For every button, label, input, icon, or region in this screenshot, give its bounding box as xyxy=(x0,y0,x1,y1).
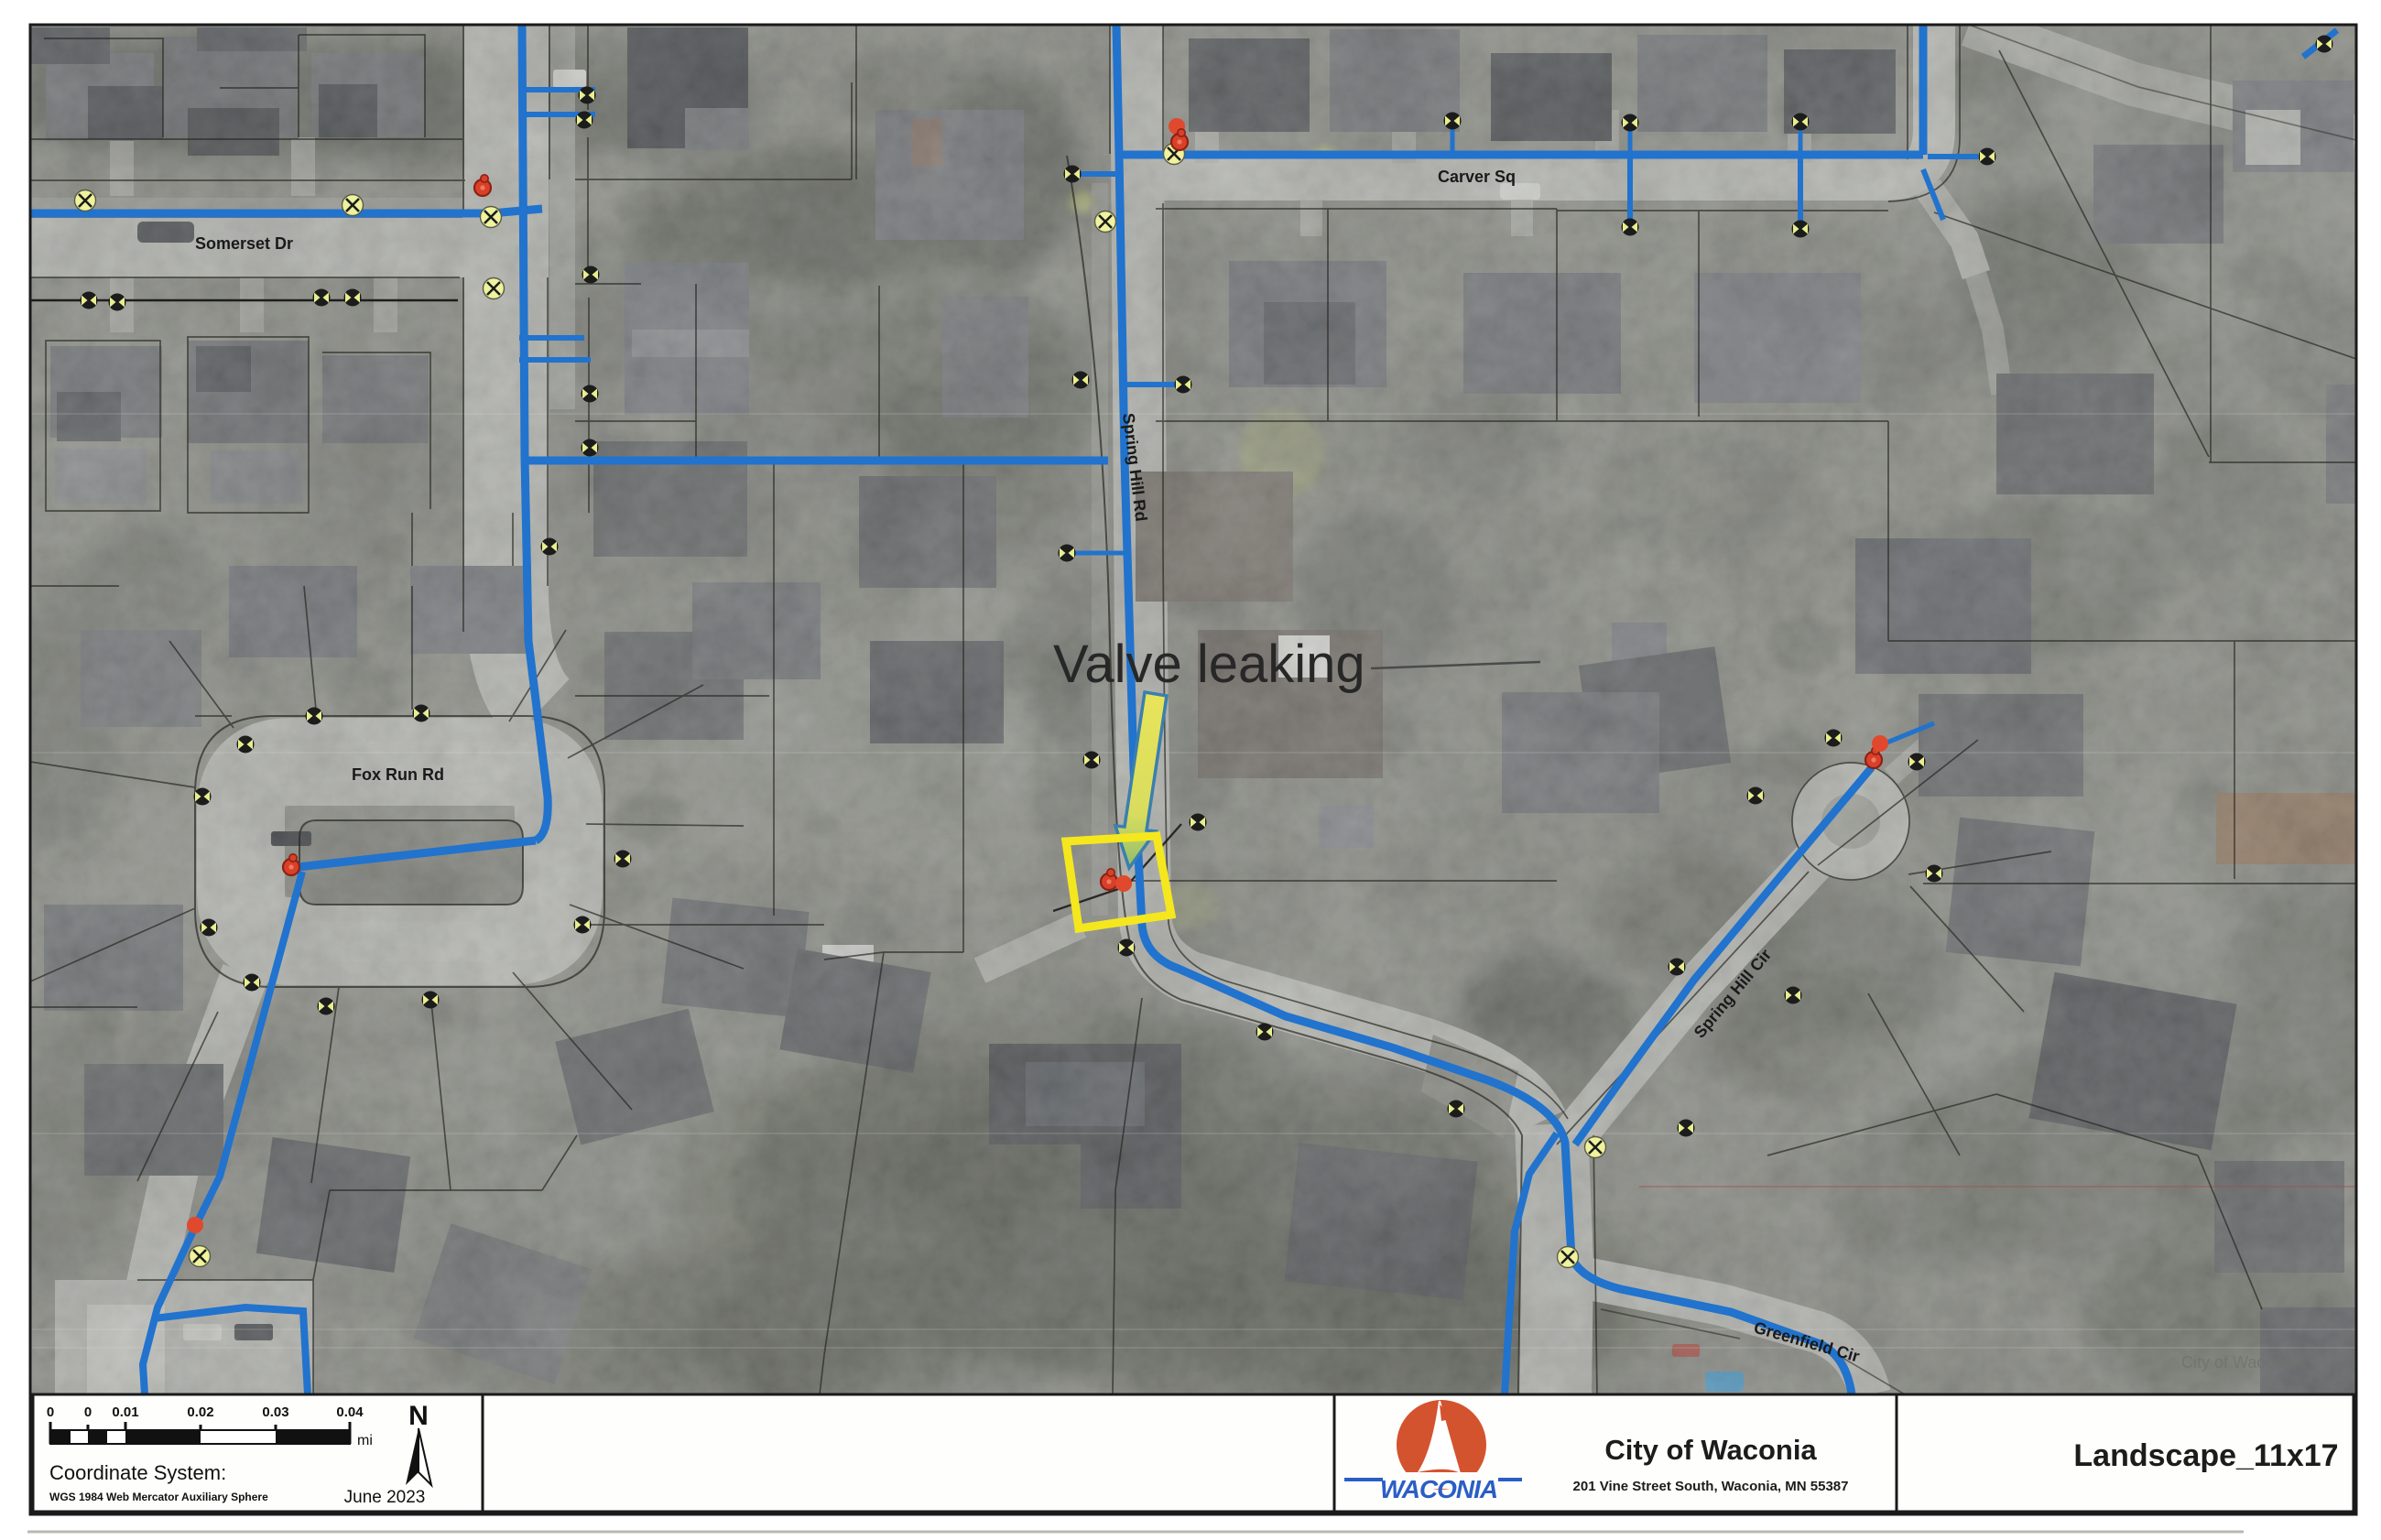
svg-text:0: 0 xyxy=(84,1404,92,1420)
svg-text:Carver Sq: Carver Sq xyxy=(1438,168,1516,186)
svg-text:Landscape_11x17: Landscape_11x17 xyxy=(2073,1438,2338,1473)
svg-text:N: N xyxy=(408,1401,429,1431)
svg-text:Somerset Dr: Somerset Dr xyxy=(195,234,293,253)
svg-text:WACONIA: WACONIA xyxy=(1380,1475,1497,1503)
svg-text:0.01: 0.01 xyxy=(112,1404,138,1420)
svg-text:Fox Run Rd: Fox Run Rd xyxy=(352,765,444,784)
svg-text:0: 0 xyxy=(47,1404,54,1420)
svg-text:0.02: 0.02 xyxy=(187,1404,213,1420)
svg-text:0.04: 0.04 xyxy=(336,1404,364,1420)
svg-text:mi: mi xyxy=(357,1433,373,1448)
svg-text:WGS 1984 Web Mercator Auxiliar: WGS 1984 Web Mercator Auxiliary Sphere xyxy=(49,1491,268,1503)
svg-text:City of Waconia: City of Waconia xyxy=(1604,1434,1817,1466)
svg-text:Valve leaking: Valve leaking xyxy=(1053,634,1365,694)
svg-text:June 2023: June 2023 xyxy=(344,1488,426,1507)
svg-text:201 Vine Street South, Waconia: 201 Vine Street South, Waconia, MN 55387 xyxy=(1573,1479,1849,1494)
svg-text:Coordinate System:: Coordinate System: xyxy=(49,1461,226,1484)
svg-text:0.03: 0.03 xyxy=(262,1404,288,1420)
svg-text:City of Waconia: City of Waconia xyxy=(2181,1353,2297,1372)
